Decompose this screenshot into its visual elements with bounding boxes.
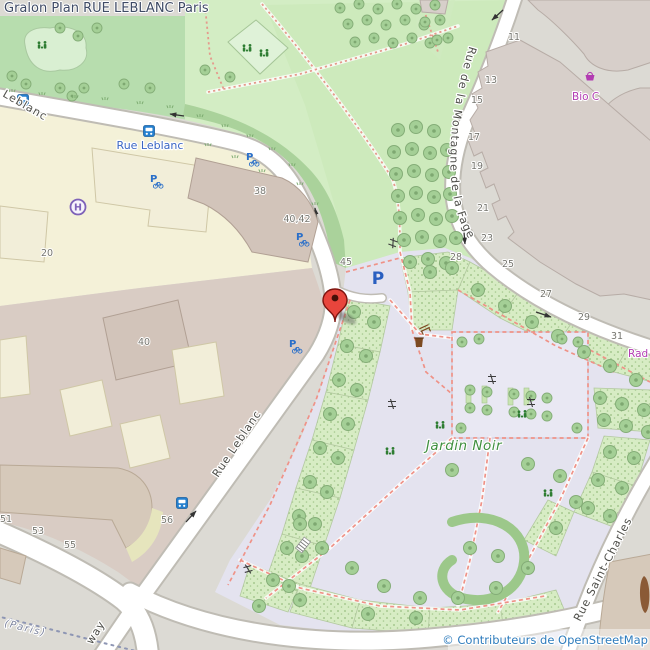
poi-label-rad: Rad	[628, 348, 648, 360]
house-number: 45	[340, 257, 352, 268]
building	[0, 336, 30, 398]
attribution-link[interactable]: © Contributeurs de OpenStreetMap	[442, 633, 648, 647]
poi-label-bio: Bio C	[572, 91, 599, 103]
garden-plaza	[452, 332, 588, 438]
house-number: 20	[41, 248, 53, 259]
map-page: P	[0, 0, 650, 650]
hospital-icon: H	[71, 200, 86, 215]
bus-stop-label: Rue Leblanc	[117, 139, 184, 152]
house-number: 40	[138, 337, 150, 348]
building	[172, 342, 224, 404]
house-number: 11	[508, 32, 520, 43]
house-number: 28	[450, 252, 462, 263]
bus-stop-icon	[144, 126, 155, 137]
marker-pin-hole	[332, 295, 339, 302]
house-number: 13	[485, 75, 497, 86]
house-number: 51	[0, 514, 12, 525]
house-number: 55	[64, 540, 76, 551]
house-number: 25	[502, 259, 514, 270]
house-number: 56	[161, 515, 173, 526]
house-number: 40,42	[283, 214, 310, 225]
house-number: 23	[481, 233, 493, 244]
house-number: 31	[611, 331, 623, 342]
house-number: 53	[32, 526, 44, 537]
hospital-letter: H	[74, 203, 82, 214]
house-number: 19	[471, 161, 483, 172]
house-number: 17	[468, 132, 480, 143]
park-label-jardin-noir: Jardin Noir	[423, 438, 503, 454]
house-number: 29	[578, 312, 590, 323]
car-parking-icon: P	[372, 269, 384, 289]
house-number: 21	[477, 203, 489, 214]
page-title: Gralon Plan RUE LEBLANC Paris	[4, 1, 209, 16]
map-canvas[interactable]: P	[0, 0, 650, 650]
building	[60, 380, 112, 436]
attribution: © Contributeurs de OpenStreetMap	[442, 629, 650, 650]
house-number: 27	[540, 289, 552, 300]
bus-stop-icon	[177, 498, 188, 509]
house-number: 38	[254, 186, 266, 197]
house-number: 15	[471, 95, 483, 106]
